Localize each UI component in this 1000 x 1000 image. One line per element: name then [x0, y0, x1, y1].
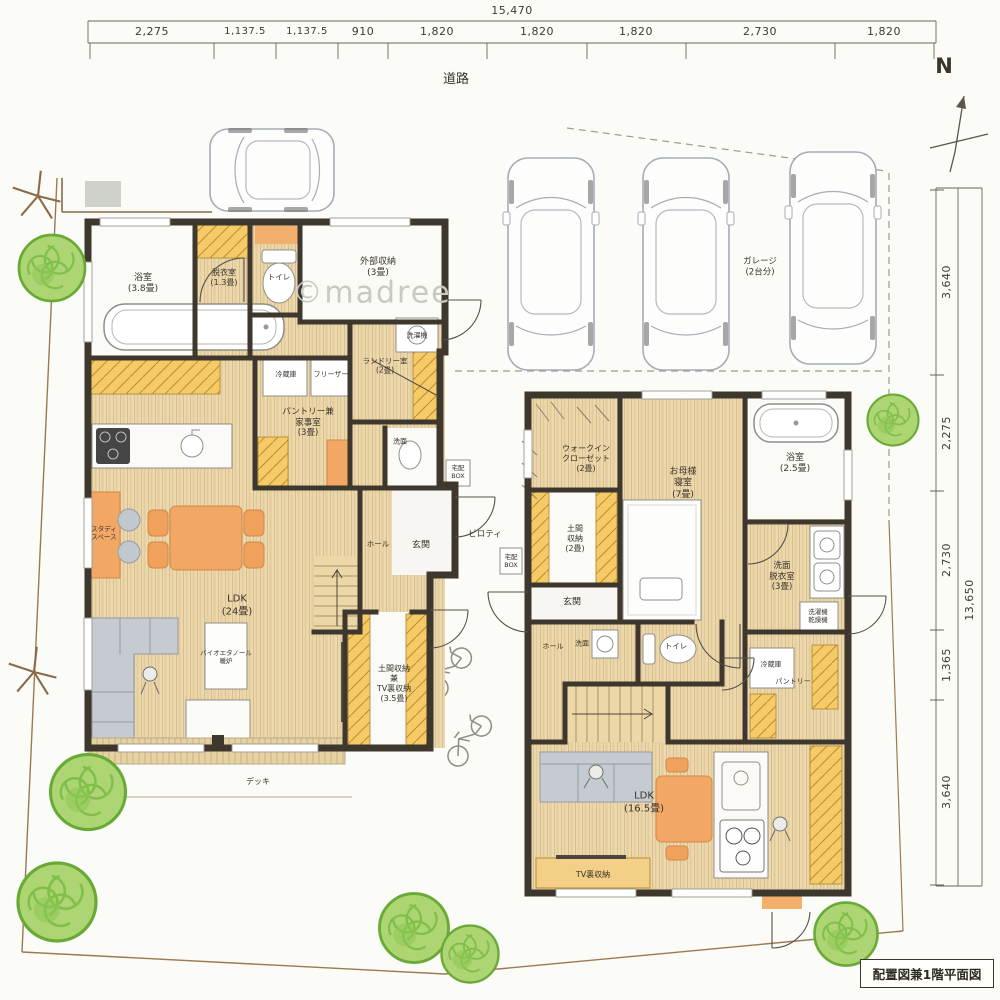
- house-east: [488, 391, 886, 948]
- site-plan: 15,470 2,275 1,137.5 1,137.5 910 1,820 1…: [0, 0, 1000, 1000]
- north-arrow: [930, 96, 988, 172]
- garage-cars: [503, 152, 881, 370]
- drawing-title-box: 配置図兼1階平面図: [860, 959, 994, 988]
- car-parking: [210, 128, 334, 212]
- watermark: ©madree: [292, 276, 451, 311]
- drawing-title: 配置図兼1階平面図: [873, 964, 982, 983]
- plan-drawing: [0, 0, 1000, 1000]
- north-label: N: [935, 54, 953, 78]
